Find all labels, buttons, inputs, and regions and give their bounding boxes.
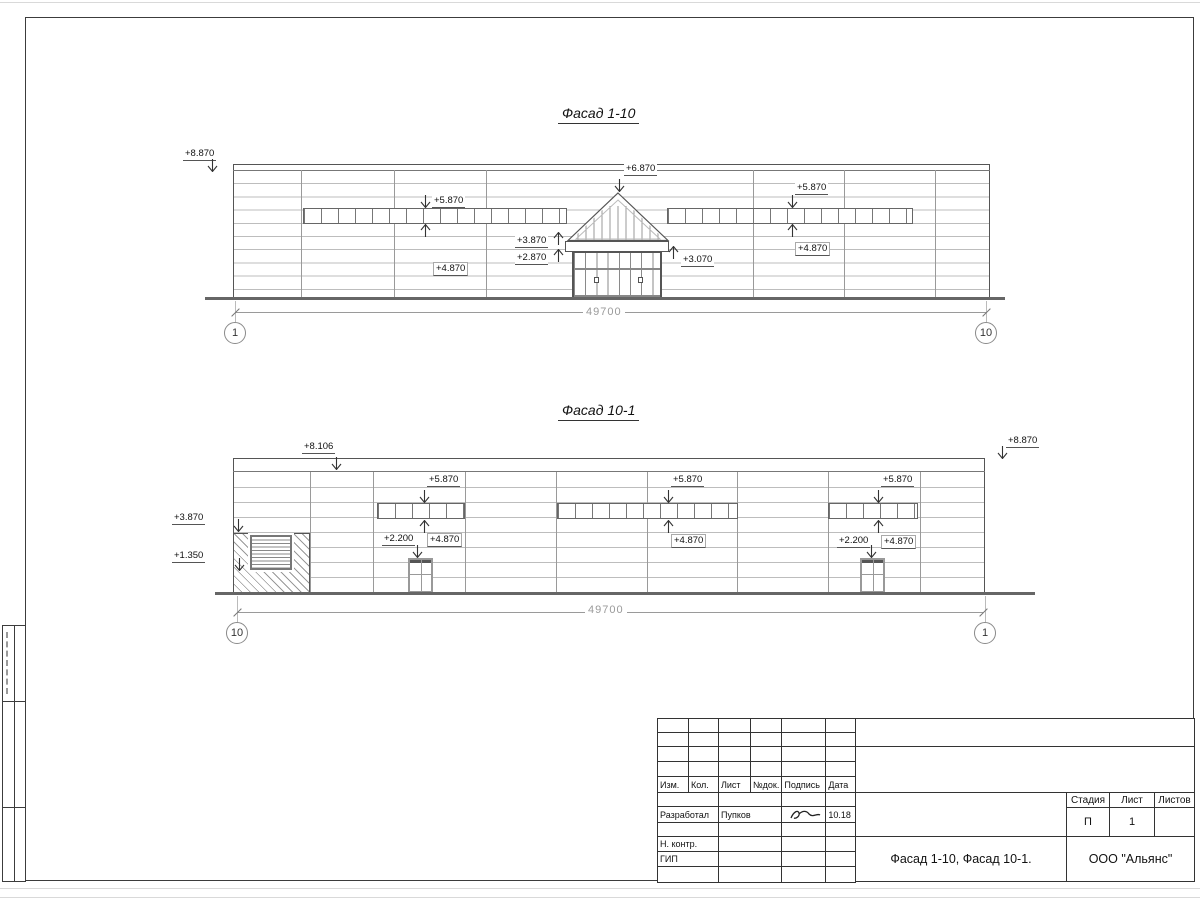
col-data: Дата xyxy=(826,777,856,793)
facade-2-title: Фасад 10-1 xyxy=(558,402,639,421)
elevation-mark-window-top: +5.870 xyxy=(881,474,914,487)
drawing-sheet: { "facade1": { "title": "Фасад 1-10", "d… xyxy=(0,0,1200,900)
col-podpis: Подпись xyxy=(782,777,826,793)
elevation-mark-canopy-bottom: +2.870 xyxy=(515,252,548,265)
left-stamp-line-1 xyxy=(3,701,25,702)
arrow-up-icon xyxy=(553,232,564,245)
axis-circle-10: 10 xyxy=(975,322,997,344)
elevation-mark-window-top: +5.870 xyxy=(671,474,704,487)
door-rail xyxy=(862,574,883,575)
arrow-down-icon xyxy=(419,490,430,503)
facade-1-panel-joint xyxy=(844,170,845,298)
elevation-mark-parapet-left: +8.106 xyxy=(302,441,335,454)
elevation-mark-louver-bottom: +1.350 xyxy=(172,550,205,563)
facade-1-title: Фасад 1-10 xyxy=(558,105,639,124)
paper-edge-top xyxy=(0,2,1200,3)
col-ndok: №док. xyxy=(751,777,782,793)
facade-1-window-band-right xyxy=(667,208,913,224)
axis-circle-1: 1 xyxy=(224,322,246,344)
elevation-mark-window-bottom: +4.870 xyxy=(433,262,468,276)
elevation-mark-window-bottom: +4.870 xyxy=(795,242,830,256)
arrow-down-icon xyxy=(787,195,798,208)
col-kol: Кол. xyxy=(689,777,719,793)
document-title: Фасад 1-10, Фасад 10-1. xyxy=(855,836,1067,882)
elevation-mark-canopy-top: +3.870 xyxy=(515,235,548,248)
entrance-door-header xyxy=(574,268,660,270)
arrow-up-icon xyxy=(419,520,430,533)
facade-1-window-band-left xyxy=(303,208,567,224)
title-block-upper-cell xyxy=(855,746,1195,793)
facade-2-panel-joint xyxy=(373,472,374,593)
door xyxy=(860,558,885,593)
elevation-mark-hatch-top: +3.870 xyxy=(172,512,205,525)
arrow-down-icon xyxy=(234,558,245,571)
left-stamp-line-2 xyxy=(3,807,25,808)
arrow-down-icon xyxy=(866,545,877,558)
signature-cell xyxy=(782,807,826,823)
arrow-down-icon xyxy=(420,195,431,208)
sheets-header: Листов xyxy=(1154,792,1195,808)
door xyxy=(408,558,433,593)
elevation-mark-window-top: +5.870 xyxy=(427,474,460,487)
elevation-mark-window-top: +5.870 xyxy=(795,182,828,195)
arrow-up-icon xyxy=(553,249,564,262)
arrow-down-icon xyxy=(412,545,423,558)
facade-2-window-band-2 xyxy=(557,503,738,519)
left-stamp xyxy=(2,625,26,882)
elevation-mark-canopy-right: +3.070 xyxy=(681,254,714,267)
sheet-header: Лист xyxy=(1109,792,1155,808)
facade-1-panel-joint xyxy=(935,170,936,298)
facade-2-panel-joint xyxy=(920,472,921,593)
arrow-up-icon xyxy=(420,224,431,237)
elevation-mark-door-top: +2.200 xyxy=(382,533,415,546)
razrabotal-date: 10.18 xyxy=(826,807,856,823)
arrow-up-icon xyxy=(787,224,798,237)
elevation-mark-window-bottom: +4.870 xyxy=(881,535,916,549)
facade-2-parapet-line xyxy=(233,471,985,472)
facade-2-panel-joint xyxy=(556,472,557,593)
paper-edge-bottom xyxy=(0,888,1200,889)
axis-circle-1: 1 xyxy=(974,622,996,644)
col-list: Лист xyxy=(719,777,751,793)
facade-1-overall-dimension: 49700 xyxy=(583,306,625,318)
door-mullion xyxy=(421,560,422,591)
signature-icon xyxy=(787,809,821,821)
facade-2-panel-joint xyxy=(828,472,829,593)
left-stamp-divider xyxy=(14,626,15,881)
arrow-down-icon xyxy=(873,490,884,503)
facade-2-panel-joint xyxy=(647,472,648,593)
sheets-total xyxy=(1154,807,1195,837)
facade-2-window-band-1 xyxy=(377,503,465,519)
arrow-down-icon xyxy=(233,519,244,532)
role-nkontr: Н. контр. xyxy=(658,837,719,852)
facade-1-panel-joint xyxy=(301,170,302,298)
stage-value: П xyxy=(1066,807,1110,837)
arrow-down-icon xyxy=(997,446,1008,459)
louver-grille xyxy=(250,535,292,570)
title-block-designation-cell xyxy=(855,718,1195,747)
arrow-down-icon xyxy=(663,490,674,503)
entrance-canopy-band xyxy=(565,241,669,252)
sheet-number: 1 xyxy=(1109,807,1155,837)
title-block-revision-table: Изм. Кол. Лист №док. Подпись Дата Разраб… xyxy=(657,718,856,883)
arrow-up-icon xyxy=(663,520,674,533)
facade-2-panel-joint xyxy=(737,472,738,593)
elevation-mark-window-top: +5.870 xyxy=(432,195,465,208)
col-izm: Изм. xyxy=(658,777,689,793)
facade-1-ground-line xyxy=(205,297,1005,300)
facade-2-panel-joint xyxy=(310,472,311,593)
stage-header: Стадия xyxy=(1066,792,1110,808)
paper-edge-bottom-2 xyxy=(0,897,1200,898)
title-block-empty-cell xyxy=(855,792,1067,837)
arrow-up-icon xyxy=(668,246,679,259)
facade-2-overall-dimension: 49700 xyxy=(585,604,627,616)
role-razrabotal: Разработал xyxy=(658,807,719,823)
entrance-canopy-gable xyxy=(566,192,670,242)
elevation-mark-window-bottom: +4.870 xyxy=(427,533,462,547)
facade-2-window-band-3 xyxy=(828,503,918,519)
facade-1-panel-joint xyxy=(753,170,754,298)
facade-2-ground-line xyxy=(215,592,1035,595)
facade-2-panel-joint xyxy=(465,472,466,593)
role-gip: ГИП xyxy=(658,852,719,867)
door-mullion xyxy=(873,560,874,591)
arrow-up-icon xyxy=(873,520,884,533)
axis-circle-10: 10 xyxy=(226,622,248,644)
elevation-mark-parapet-right: +8.870 xyxy=(1006,435,1039,448)
door-handle xyxy=(594,277,599,283)
left-stamp-illegible-text xyxy=(6,632,9,694)
razrabotal-name: Пупков xyxy=(719,807,782,823)
arrow-down-icon xyxy=(614,179,625,192)
door-rail xyxy=(410,574,431,575)
arrow-down-icon xyxy=(207,159,218,172)
elevation-mark-window-bottom: +4.870 xyxy=(671,534,706,548)
facade-1-parapet-line xyxy=(233,170,990,171)
facade-1-panel-joint xyxy=(394,170,395,298)
elevation-mark-canopy-apex: +6.870 xyxy=(624,163,657,176)
axis-extension-line xyxy=(237,596,238,622)
arrow-down-icon xyxy=(331,457,342,470)
entrance-storefront xyxy=(572,252,662,298)
door-handle xyxy=(638,277,643,283)
company-name: ООО "Альянс" xyxy=(1066,836,1195,882)
facade-1-panel-joint xyxy=(486,170,487,298)
